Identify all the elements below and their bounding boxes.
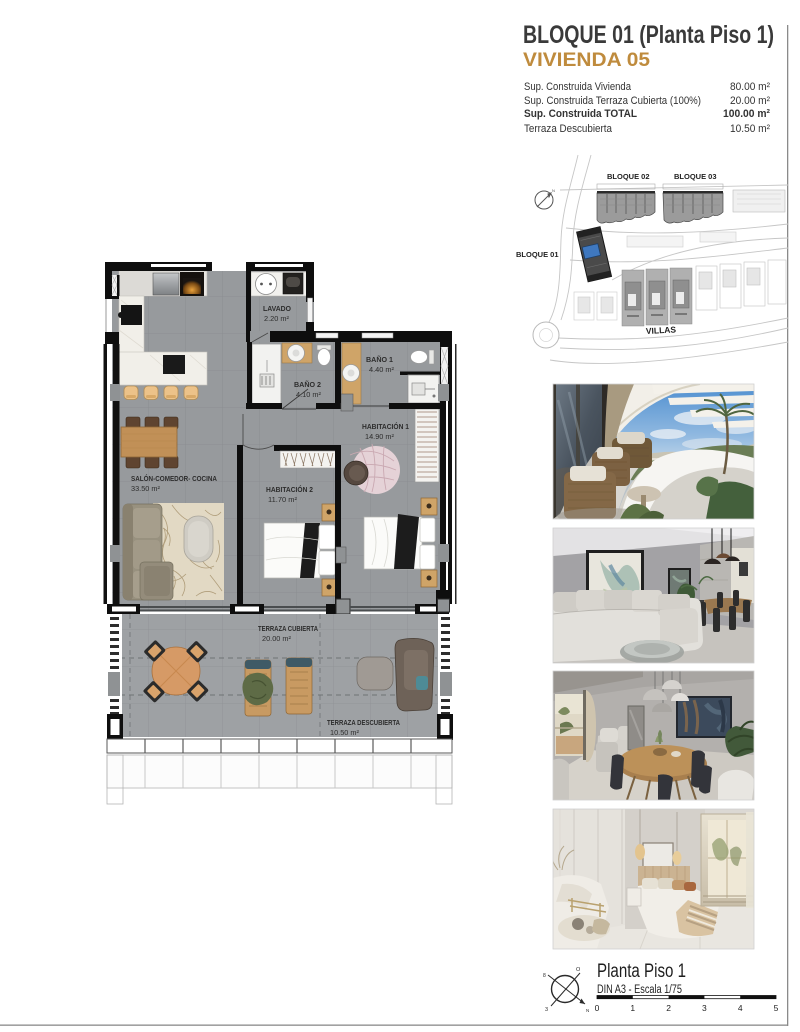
svg-text:DIN A3 - Escala 1/75: DIN A3 - Escala 1/75 <box>597 984 682 996</box>
svg-text:11.70 m²: 11.70 m² <box>268 495 297 504</box>
svg-text:BAÑO 1: BAÑO 1 <box>366 355 393 364</box>
svg-text:14.90 m²: 14.90 m² <box>365 432 394 441</box>
svg-text:10.50 m²: 10.50 m² <box>330 728 359 737</box>
svg-text:TERRAZA DESCUBIERTA: TERRAZA DESCUBIERTA <box>327 718 400 727</box>
svg-text:4.40 m²: 4.40 m² <box>369 365 394 374</box>
svg-text:HABITACIÓN 1: HABITACIÓN 1 <box>362 422 409 431</box>
svg-text:1: 1 <box>630 1003 635 1013</box>
svg-text:33.50 m²: 33.50 m² <box>131 484 160 493</box>
svg-text:TERRAZA CUBIERTA: TERRAZA CUBIERTA <box>258 624 318 633</box>
svg-text:HABITACIÓN 2: HABITACIÓN 2 <box>266 485 313 494</box>
svg-text:0: 0 <box>595 1003 600 1013</box>
svg-text:100.00 m²: 100.00 m² <box>723 108 770 120</box>
svg-text:N: N <box>586 1008 589 1013</box>
svg-text:Terraza Descubierta: Terraza Descubierta <box>524 123 613 135</box>
svg-text:Sup. Construida Vivienda: Sup. Construida Vivienda <box>524 81 632 93</box>
svg-text:N: N <box>552 188 555 193</box>
svg-text:4.10 m²: 4.10 m² <box>296 390 321 399</box>
svg-text:BAÑO 2: BAÑO 2 <box>294 380 321 389</box>
svg-text:BLOQUE 03: BLOQUE 03 <box>674 172 717 181</box>
svg-text:4: 4 <box>738 1003 743 1013</box>
svg-text:20.00 m²: 20.00 m² <box>262 634 291 643</box>
svg-text:2.20 m²: 2.20 m² <box>264 314 289 323</box>
svg-text:LAVADO: LAVADO <box>263 304 291 313</box>
svg-text:VIVIENDA 05: VIVIENDA 05 <box>523 50 650 71</box>
svg-text:8: 8 <box>543 973 546 979</box>
svg-text:BLOQUE 01: BLOQUE 01 <box>516 250 559 259</box>
svg-text:10.50 m²: 10.50 m² <box>730 123 770 135</box>
svg-text:5: 5 <box>774 1003 779 1013</box>
svg-text:3: 3 <box>702 1003 707 1013</box>
svg-text:80.00 m²: 80.00 m² <box>730 81 770 93</box>
svg-text:Sup. Construida Terraza Cubier: Sup. Construida Terraza Cubierta (100%) <box>524 95 701 107</box>
svg-text:2: 2 <box>666 1003 671 1013</box>
svg-text:Sup. Construida TOTAL: Sup. Construida TOTAL <box>524 108 637 120</box>
svg-text:3: 3 <box>545 1007 548 1013</box>
svg-text:BLOQUE 01 (Planta Piso 1): BLOQUE 01 (Planta Piso 1) <box>523 21 774 49</box>
svg-text:VILLAS: VILLAS <box>646 324 677 336</box>
svg-text:SALÓN-COMEDOR- COCINA: SALÓN-COMEDOR- COCINA <box>131 474 217 483</box>
svg-text:O: O <box>576 967 581 973</box>
svg-text:Planta Piso 1: Planta Piso 1 <box>597 961 686 982</box>
svg-text:20.00 m²: 20.00 m² <box>730 95 770 107</box>
svg-text:BLOQUE 02: BLOQUE 02 <box>607 172 650 181</box>
